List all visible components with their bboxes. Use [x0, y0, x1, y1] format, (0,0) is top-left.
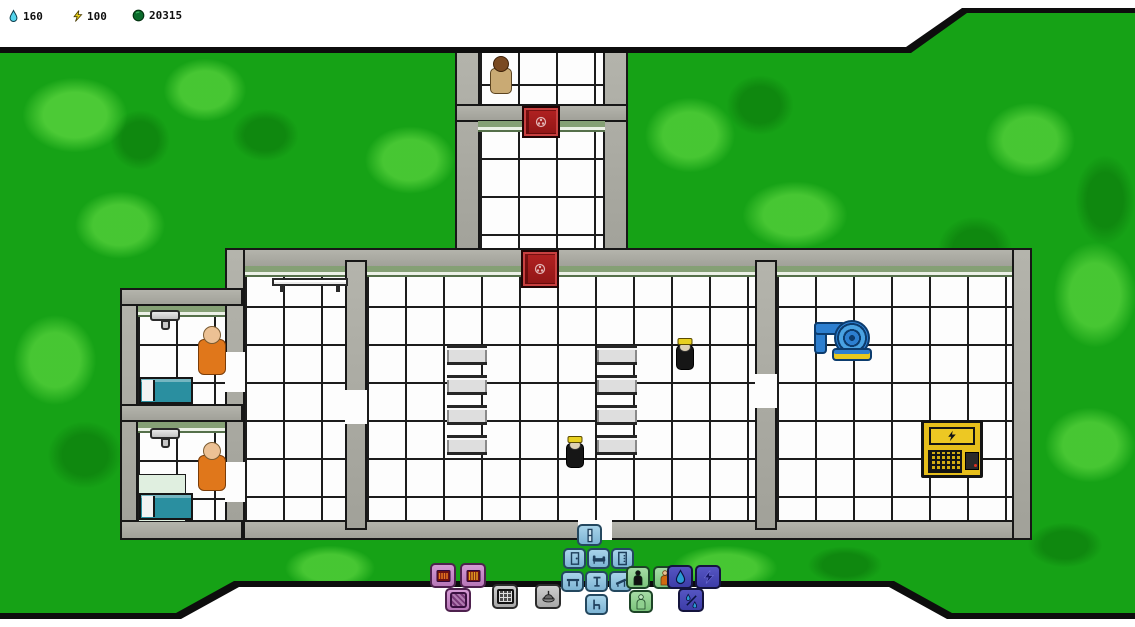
floor-lobby: [243, 266, 347, 522]
generator-grille: [928, 450, 962, 473]
water-utility-button[interactable]: [667, 565, 693, 589]
bench-leg: [280, 286, 284, 292]
coin-icon: [132, 9, 145, 22]
chair-icon: [590, 597, 603, 612]
water-pump[interactable]: [810, 316, 874, 364]
door-emblem-icon: [534, 115, 548, 129]
patient-body: [198, 455, 226, 491]
window-button[interactable]: [577, 524, 602, 546]
bed-pillow: [142, 380, 155, 401]
water-drop-icon: [8, 9, 19, 23]
patient-head: [203, 326, 221, 344]
generator-led: [974, 464, 977, 467]
lightning-icon: [72, 9, 83, 23]
stand-button[interactable]: [585, 571, 608, 592]
doorway-hall-utility: [755, 374, 777, 408]
trim-utility: [777, 266, 1012, 277]
guard-person-icon: [632, 570, 644, 586]
table-row[interactable]: [447, 405, 487, 425]
character-visitor[interactable]: [490, 56, 512, 94]
table-row[interactable]: [447, 375, 487, 395]
funds-value: 20315: [149, 9, 182, 22]
table-row[interactable]: [447, 435, 487, 455]
guard-button[interactable]: [626, 566, 650, 589]
power-value: 100: [87, 10, 107, 23]
generator-screen: [965, 452, 979, 470]
doorway-cell-a: [225, 352, 245, 392]
radiator-icon: [465, 568, 482, 584]
drain-percent-icon: [684, 593, 699, 608]
floor-corridor-lower: [478, 118, 605, 252]
bed-button[interactable]: [587, 548, 610, 569]
trim-hall: [367, 266, 755, 277]
door-button[interactable]: [563, 548, 586, 569]
generator[interactable]: [921, 420, 983, 478]
ceiling-lamp-icon: [540, 589, 557, 604]
patient-body: [198, 339, 226, 375]
wall-annex-bottom: [120, 520, 243, 540]
civilian-person-icon: [635, 594, 647, 610]
civilian-button[interactable]: [629, 590, 653, 613]
pump-base: [832, 348, 872, 361]
guard-cap: [678, 338, 693, 345]
water-value: 160: [23, 10, 43, 23]
console-button[interactable]: [492, 584, 518, 609]
game-viewport: 160 100 20315: [0, 0, 1135, 627]
wall-bench[interactable]: [272, 278, 348, 286]
wall-corridor-right: [603, 44, 628, 266]
wall-corridor-left: [455, 44, 480, 266]
ceiling-lamp-button[interactable]: [535, 584, 561, 609]
doorway-cell-b: [225, 462, 245, 502]
table-button[interactable]: [561, 571, 584, 592]
locker-icon: [616, 551, 629, 566]
heater-icon: [435, 568, 452, 584]
trim-lobby: [245, 266, 345, 277]
floor-pattern-button[interactable]: [445, 588, 471, 612]
character-patient[interactable]: [196, 326, 228, 376]
character-guard[interactable]: [566, 436, 584, 466]
character-patient[interactable]: [196, 442, 228, 492]
character-guard[interactable]: [676, 338, 694, 368]
wall-main-right: [1012, 248, 1032, 540]
water-drop-icon: [674, 569, 687, 585]
chair-button[interactable]: [585, 594, 608, 615]
power-resource: 100: [72, 9, 107, 23]
bed[interactable]: [139, 377, 193, 404]
water-resource: 160: [8, 9, 43, 23]
lightning-icon: [702, 569, 715, 585]
visitor-head: [493, 56, 509, 72]
patient-head: [203, 442, 221, 460]
floor-utility-room: [775, 266, 1014, 522]
table-icon: [565, 575, 581, 589]
floor-main-hall: [365, 266, 757, 522]
doorway-lobby-hall: [345, 390, 367, 424]
window-icon: [584, 528, 596, 543]
floor-pattern-icon: [450, 592, 467, 608]
lightning-icon: [946, 430, 958, 442]
generator-panel: [929, 427, 975, 445]
bench-leg: [336, 286, 340, 292]
bed-pillow: [142, 496, 155, 517]
heater-a-button[interactable]: [430, 563, 456, 588]
heater-b-button[interactable]: [460, 563, 486, 588]
table-row[interactable]: [597, 375, 637, 395]
bed[interactable]: [139, 493, 193, 520]
sink[interactable]: [150, 428, 180, 448]
sink[interactable]: [150, 310, 180, 330]
funds-resource: 20315: [132, 9, 182, 22]
table-row[interactable]: [447, 345, 487, 365]
bed-icon: [591, 552, 607, 566]
table-row[interactable]: [597, 405, 637, 425]
door-emblem-icon: [533, 262, 547, 276]
door-icon: [568, 551, 582, 566]
sink-stem: [161, 320, 170, 330]
table-row[interactable]: [597, 435, 637, 455]
secure-door-lower[interactable]: [521, 250, 559, 288]
stand-icon: [590, 574, 604, 589]
bench-slab: [272, 278, 348, 286]
table-row[interactable]: [597, 345, 637, 365]
console-icon: [497, 589, 514, 604]
guard-cap: [568, 436, 583, 443]
power-utility-button[interactable]: [695, 565, 721, 589]
secure-door-upper[interactable]: [522, 106, 560, 138]
drain-utility-button[interactable]: [678, 588, 704, 612]
sink-stem: [161, 438, 170, 448]
